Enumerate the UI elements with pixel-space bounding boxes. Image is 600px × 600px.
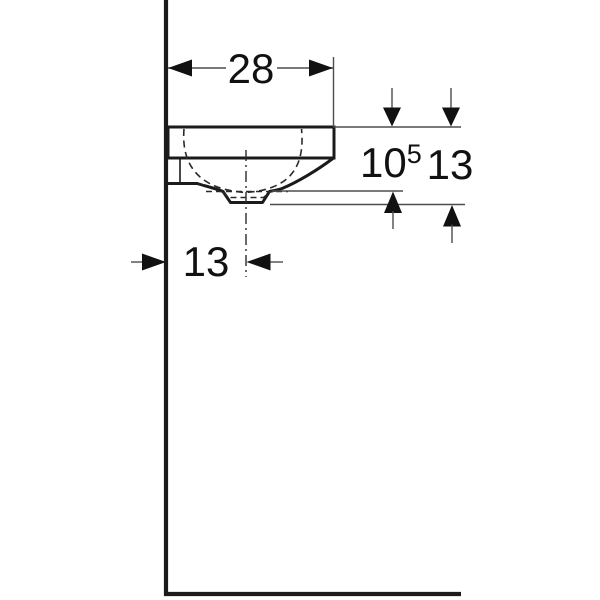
arrow-left-icon bbox=[247, 254, 271, 271]
technical-drawing-canvas: 28 105 13 13 bbox=[0, 0, 600, 600]
arrow-up-icon bbox=[443, 205, 461, 227]
basin-rim-outline bbox=[168, 127, 334, 158]
arrow-right-icon bbox=[309, 60, 333, 77]
dim-height-total-label: 13 bbox=[427, 141, 474, 188]
arrow-down-icon bbox=[442, 108, 460, 127]
dim-height-front-base: 10 bbox=[360, 139, 407, 186]
arrow-left-icon bbox=[168, 60, 192, 77]
dim-height-front-label: 105 bbox=[360, 139, 422, 186]
dim-drain-offset-label: 13 bbox=[183, 238, 230, 285]
arrow-down-icon bbox=[383, 108, 401, 127]
basin-side-elevation-drawing: 28 105 13 13 bbox=[0, 0, 600, 600]
dim-height-front-sup: 5 bbox=[407, 139, 422, 169]
arrow-up-icon bbox=[384, 192, 402, 214]
dim-width-label: 28 bbox=[228, 45, 275, 92]
arrow-right-icon bbox=[142, 254, 166, 271]
